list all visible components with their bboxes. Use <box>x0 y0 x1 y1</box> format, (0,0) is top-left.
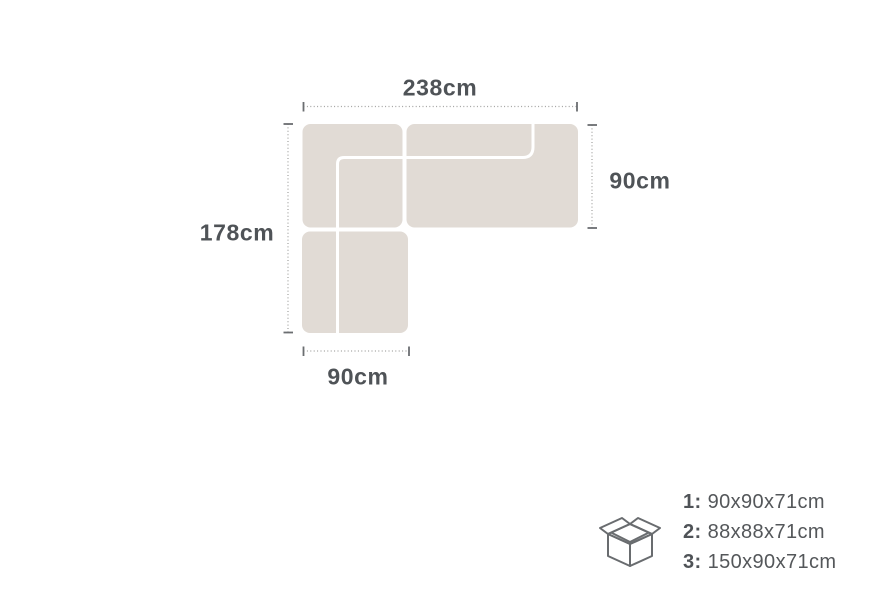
dimension-label-left: 178cm <box>200 220 275 247</box>
sofa-piece-bottom <box>302 232 408 334</box>
sofa-piece-right <box>407 124 579 228</box>
dimension-label-right: 90cm <box>609 168 670 195</box>
sofa-piece-corner <box>303 124 403 228</box>
open-box-icon <box>597 511 663 567</box>
package-dimensions: 1: 90x90x71cm 2: 88x88x71cm 3: 150x90x71… <box>597 487 836 577</box>
dim-line-right <box>588 125 598 228</box>
package-row-1: 1: 90x90x71cm <box>683 487 836 517</box>
dim-line-bottom <box>304 347 410 357</box>
dim-line-left <box>284 124 294 333</box>
package-list: 1: 90x90x71cm 2: 88x88x71cm 3: 150x90x71… <box>683 487 836 577</box>
package-row-3: 3: 150x90x71cm <box>683 547 836 577</box>
dimension-label-top: 238cm <box>403 75 478 102</box>
dimension-label-bottom: 90cm <box>327 364 388 391</box>
package-row-2: 2: 88x88x71cm <box>683 517 836 547</box>
package-number: 3: <box>683 551 702 573</box>
box-face-right <box>630 534 652 566</box>
package-size: 90x90x71cm <box>708 491 825 513</box>
package-number: 2: <box>683 521 702 543</box>
sofa-dimension-diagram: 238cm 178cm 90cm 90cm 1: 90x90x71cm 2: 8… <box>0 0 880 600</box>
package-size: 150x90x71cm <box>708 551 837 573</box>
box-face-left <box>608 534 630 566</box>
package-size: 88x88x71cm <box>708 521 825 543</box>
dim-line-top <box>304 102 578 112</box>
sofa-footprint <box>302 124 578 333</box>
package-number: 1: <box>683 491 702 513</box>
